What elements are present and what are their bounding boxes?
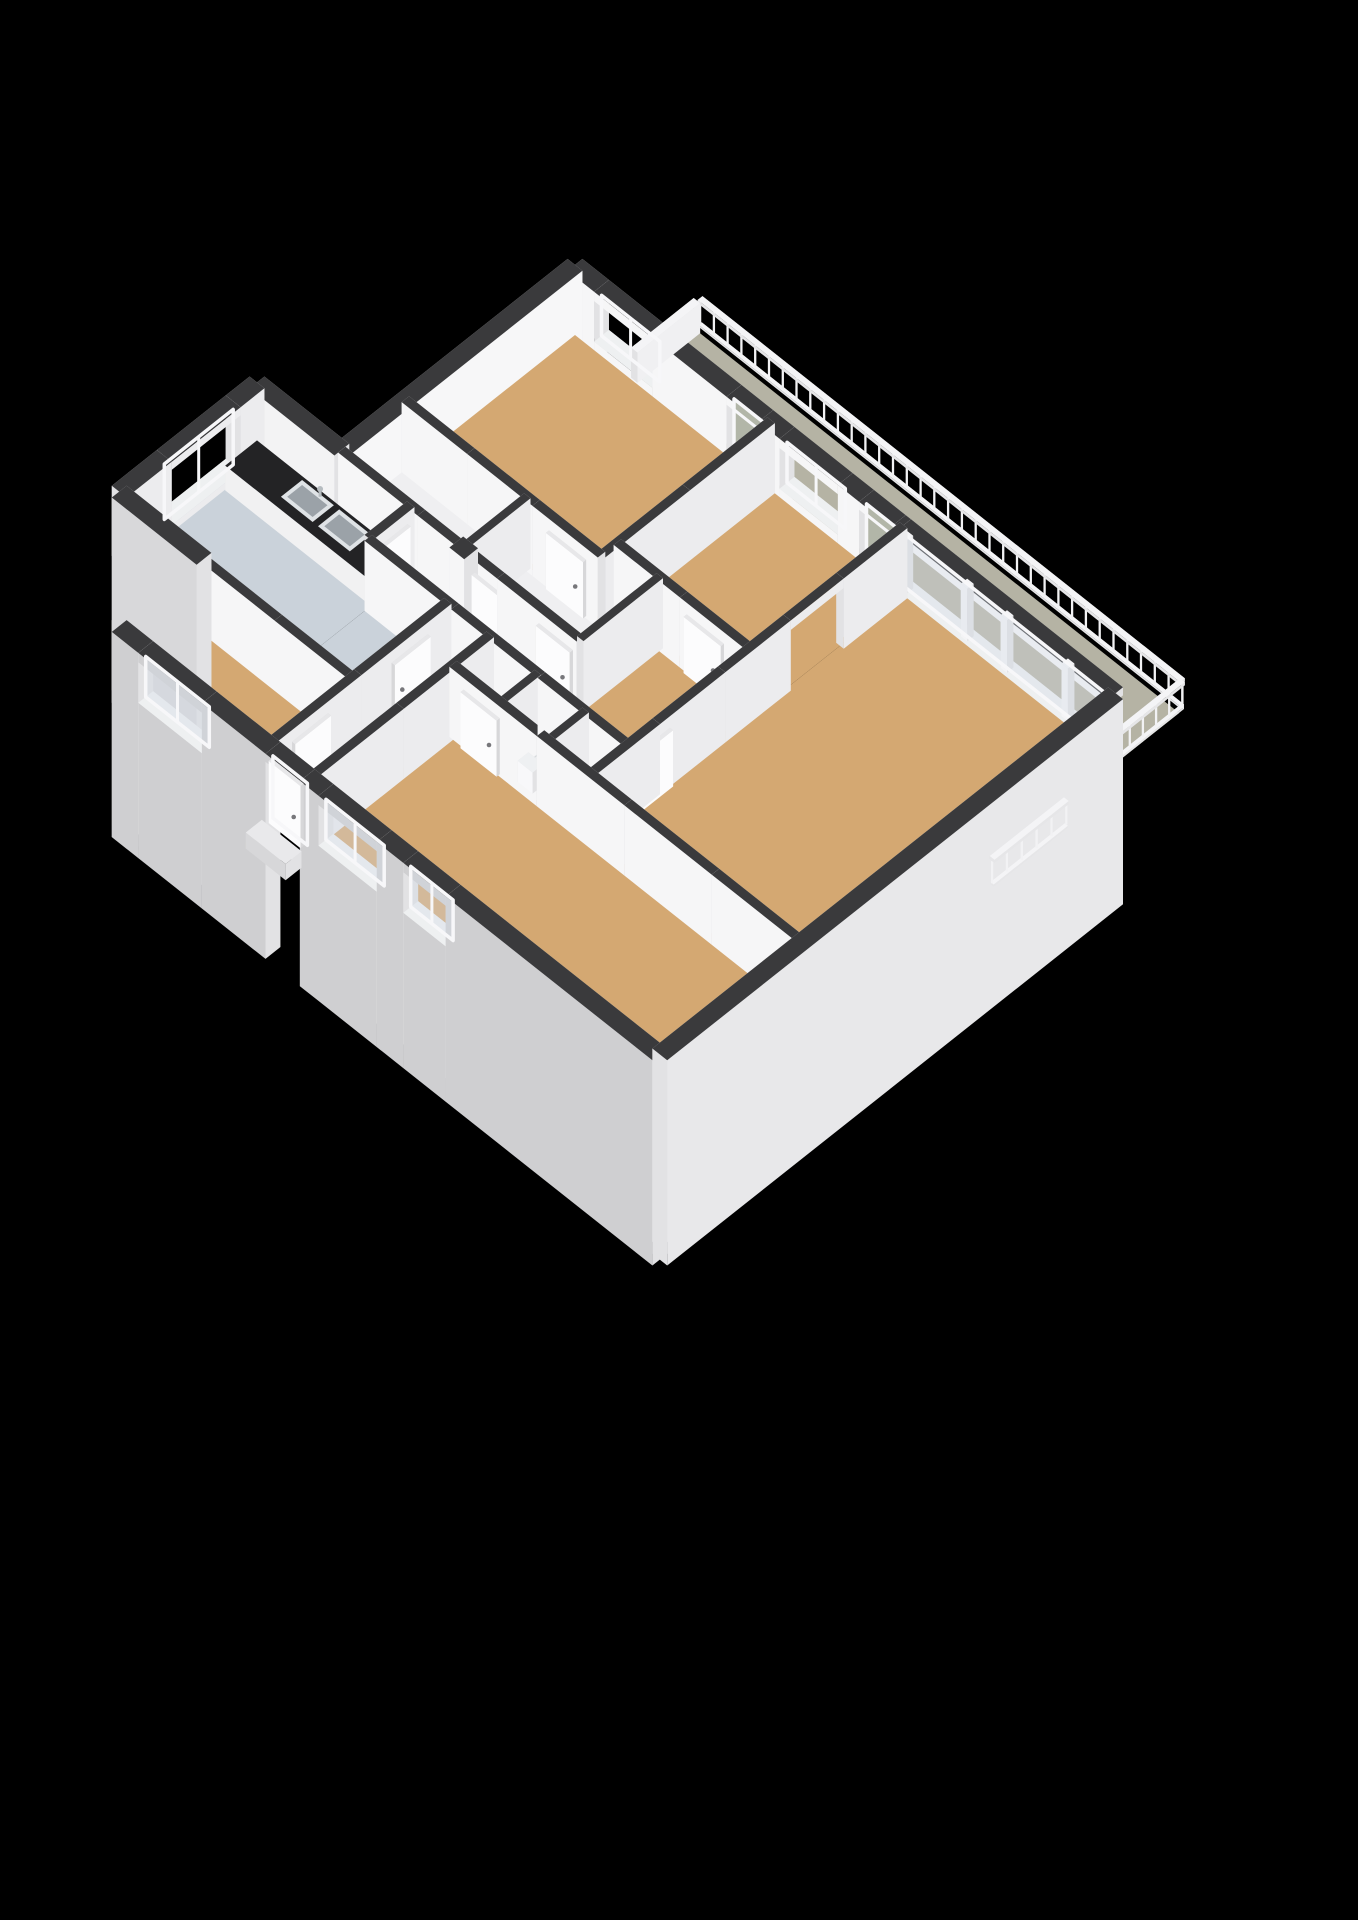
- floorplan-3d-svg: [0, 0, 1358, 1920]
- door-bathroom-handle: [400, 687, 405, 692]
- wall-se: [652, 1049, 667, 1266]
- floorplan-3d-view: [0, 0, 1358, 1920]
- door-bedroom4-handle: [487, 743, 492, 748]
- door-bedroom1: [583, 560, 586, 619]
- entrance-door-handle: [291, 815, 296, 820]
- door-storage-handle: [560, 675, 565, 680]
- door-bedroom1-handle: [573, 584, 578, 589]
- door-bedroom4: [497, 718, 500, 777]
- wall-sw-a: [112, 632, 139, 858]
- faucet: [317, 486, 323, 492]
